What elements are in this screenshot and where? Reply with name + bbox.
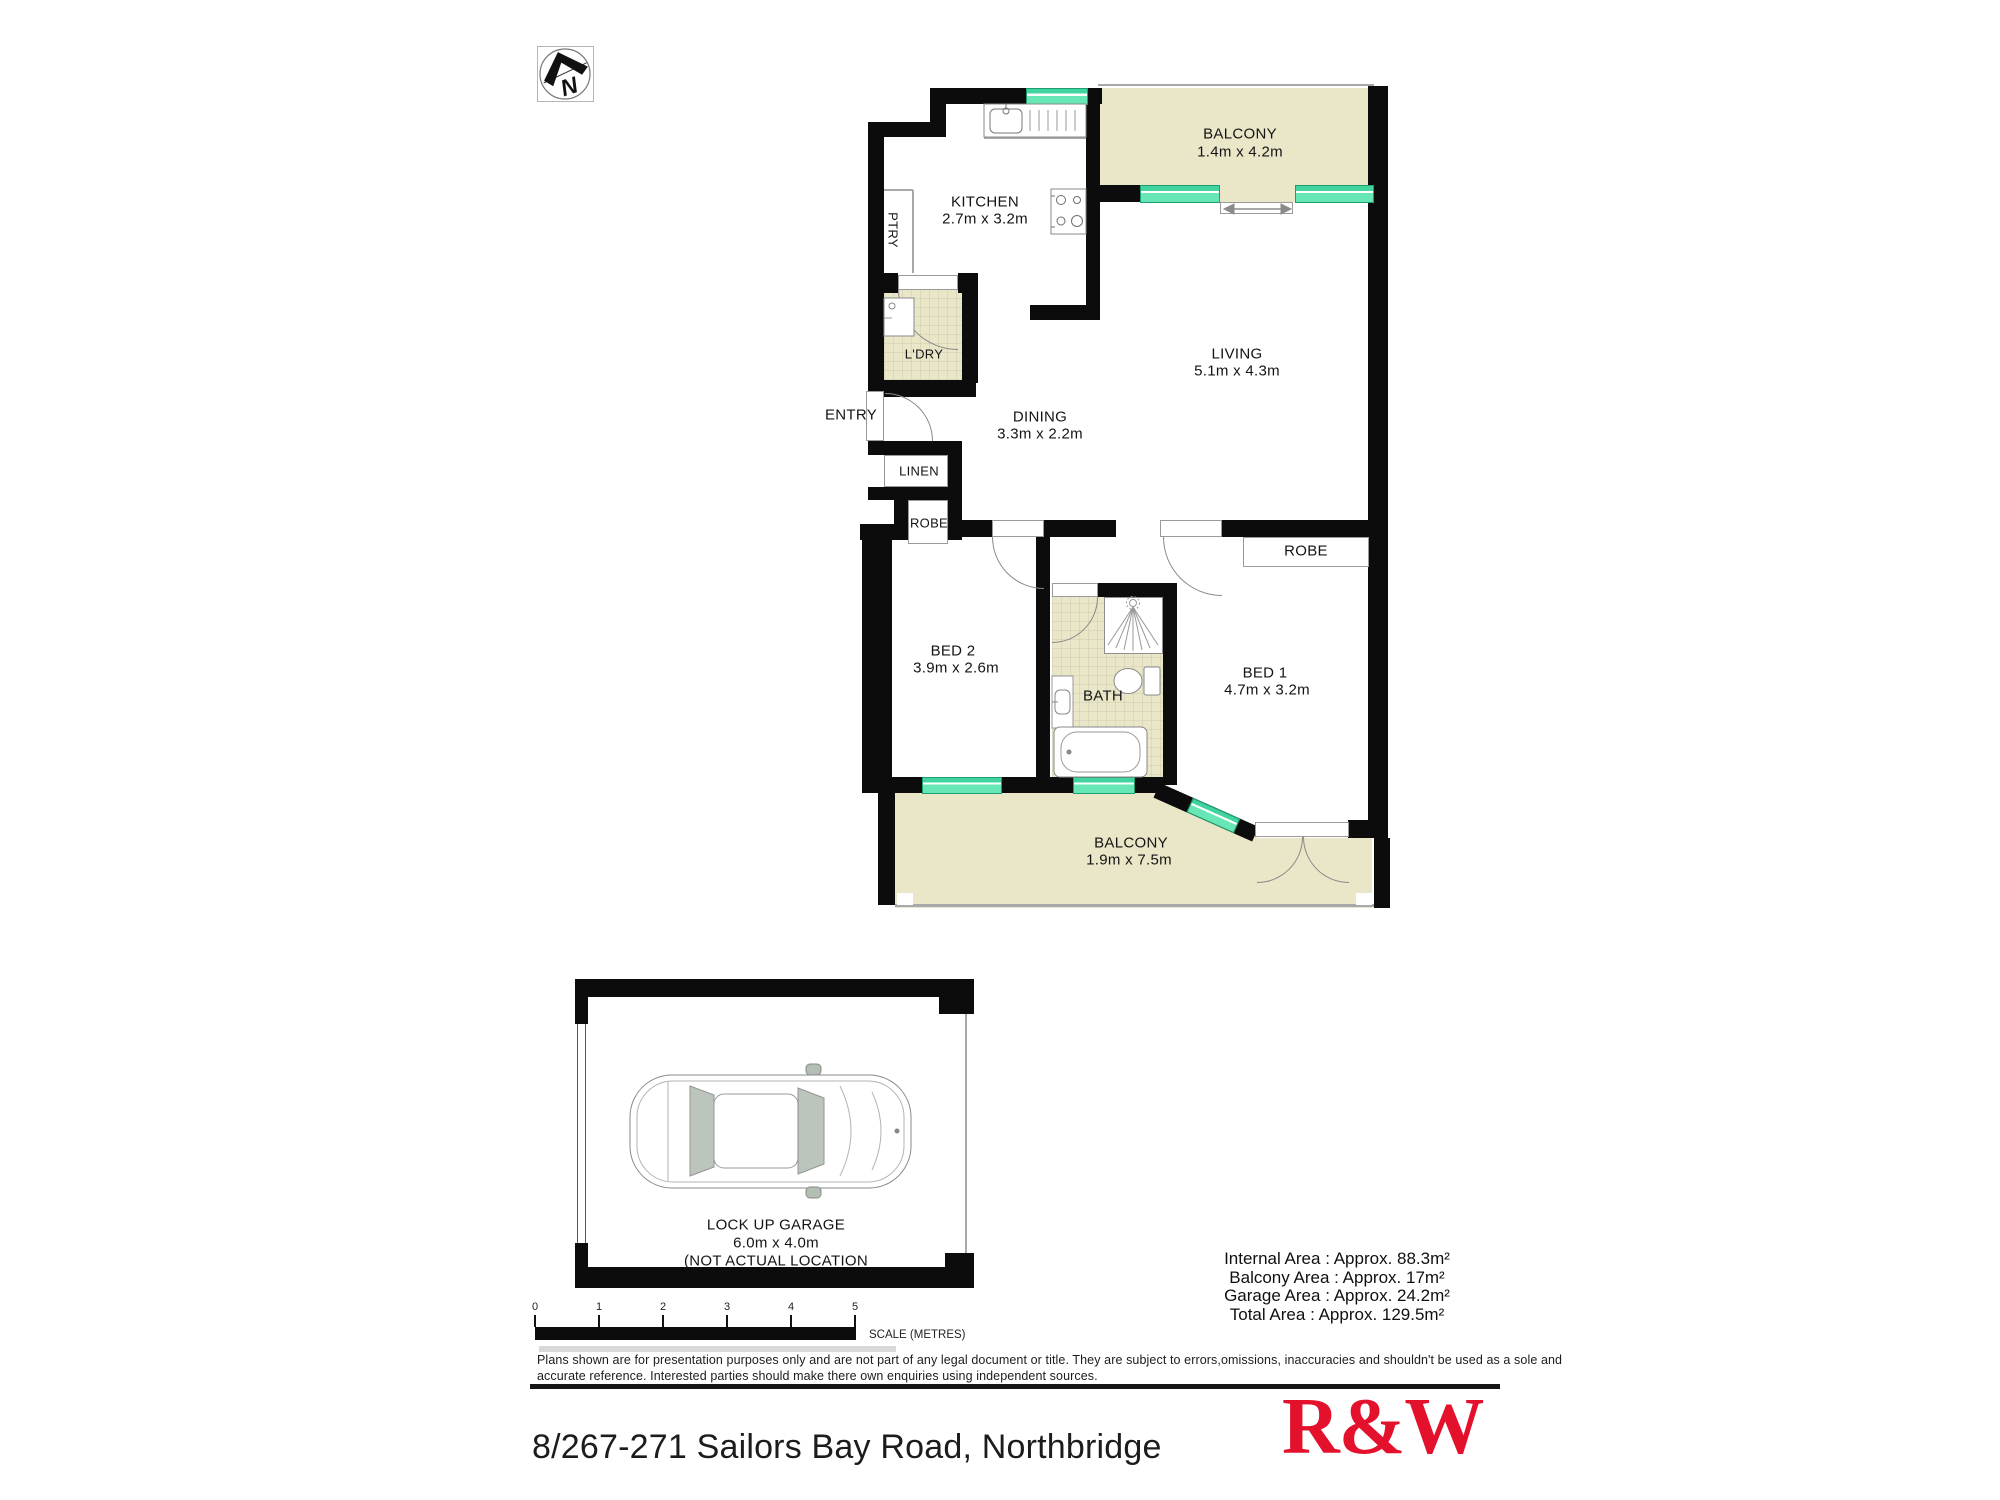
scale-tick-mark xyxy=(662,1315,664,1327)
scale-tick-mark xyxy=(726,1315,728,1327)
scale-tick-mark xyxy=(598,1315,600,1327)
room-label-bed2: BED 2 xyxy=(931,643,976,660)
scale-tick-4: 4 xyxy=(788,1301,794,1313)
room-dims-balcony-bottom: 1.9m x 7.5m xyxy=(1086,852,1172,869)
car-icon xyxy=(630,1064,911,1198)
area-balcony: Balcony Area : Approx. 17m² xyxy=(1224,1269,1450,1288)
room-dims-balcony-top: 1.4m x 4.2m xyxy=(1197,144,1283,161)
area-garage: Garage Area : Approx. 24.2m² xyxy=(1224,1287,1450,1306)
room-label-laundry: L'DRY xyxy=(905,347,943,362)
bathtub-icon xyxy=(1054,727,1147,777)
room-label-entry: ENTRY xyxy=(825,407,877,424)
scale-bar-rule xyxy=(535,1327,856,1340)
room-label-balcony-top: BALCONY xyxy=(1203,126,1277,143)
scale-tick-5: 5 xyxy=(852,1301,858,1313)
room-label-garage: LOCK UP GARAGE xyxy=(707,1217,845,1234)
room-label-kitchen: KITCHEN xyxy=(951,194,1019,211)
floor-plan-page: N xyxy=(0,0,2000,1500)
agency-logo: R&W xyxy=(1282,1394,1483,1460)
room-dims-bed1: 4.7m x 3.2m xyxy=(1224,682,1310,699)
room-label-pantry: PTRY xyxy=(886,212,901,248)
washing-machine-icon xyxy=(884,298,914,336)
scale-bar-label: SCALE (METRES) xyxy=(869,1329,966,1341)
scale-tick-2: 2 xyxy=(660,1301,666,1313)
kitchen-sink-icon xyxy=(984,104,1086,137)
room-label-living: LIVING xyxy=(1212,346,1263,363)
vanity-icon xyxy=(1052,676,1073,728)
scale-bar-shadow xyxy=(539,1346,896,1352)
area-total: Total Area : Approx. 129.5m² xyxy=(1224,1306,1450,1325)
room-label-balcony-bottom: BALCONY xyxy=(1094,835,1168,852)
disclaimer-line1: Plans shown are for presentation purpose… xyxy=(537,1353,1562,1367)
disclaimer-line2: accurate reference. Interested parties s… xyxy=(537,1369,1098,1383)
room-dims-garage: 6.0m x 4.0m xyxy=(733,1235,819,1252)
room-label-linen: LINEN xyxy=(899,464,939,479)
room-label-bed1: BED 1 xyxy=(1243,665,1288,682)
scale-tick-mark xyxy=(854,1315,856,1327)
shower-icon xyxy=(1108,597,1158,652)
scale-tick-0: 0 xyxy=(532,1301,538,1313)
room-label-robe-bed2: ROBE xyxy=(910,516,948,531)
scale-tick-mark xyxy=(534,1315,536,1327)
room-dims-kitchen: 2.7m x 3.2m xyxy=(942,211,1028,228)
stove-icon xyxy=(1051,189,1086,234)
room-dims-dining: 3.3m x 2.2m xyxy=(997,426,1083,443)
room-label-bath: BATH xyxy=(1083,688,1123,705)
area-internal: Internal Area : Approx. 88.3m² xyxy=(1224,1250,1450,1269)
room-label-robe-bed1: ROBE xyxy=(1284,543,1328,560)
scale-tick-3: 3 xyxy=(724,1301,730,1313)
room-note-garage: (NOT ACTUAL LOCATION xyxy=(684,1253,868,1270)
room-dims-living: 5.1m x 4.3m xyxy=(1194,363,1280,380)
sliding-door-arrow-icon xyxy=(1224,204,1291,214)
scale-tick-mark xyxy=(790,1315,792,1327)
area-summary: Internal Area : Approx. 88.3m² Balcony A… xyxy=(1224,1250,1450,1324)
scale-tick-1: 1 xyxy=(596,1301,602,1313)
room-dims-bed2: 3.9m x 2.6m xyxy=(913,660,999,677)
property-address: 8/267-271 Sailors Bay Road, Northbridge xyxy=(532,1428,1162,1467)
room-label-dining: DINING xyxy=(1013,409,1067,426)
